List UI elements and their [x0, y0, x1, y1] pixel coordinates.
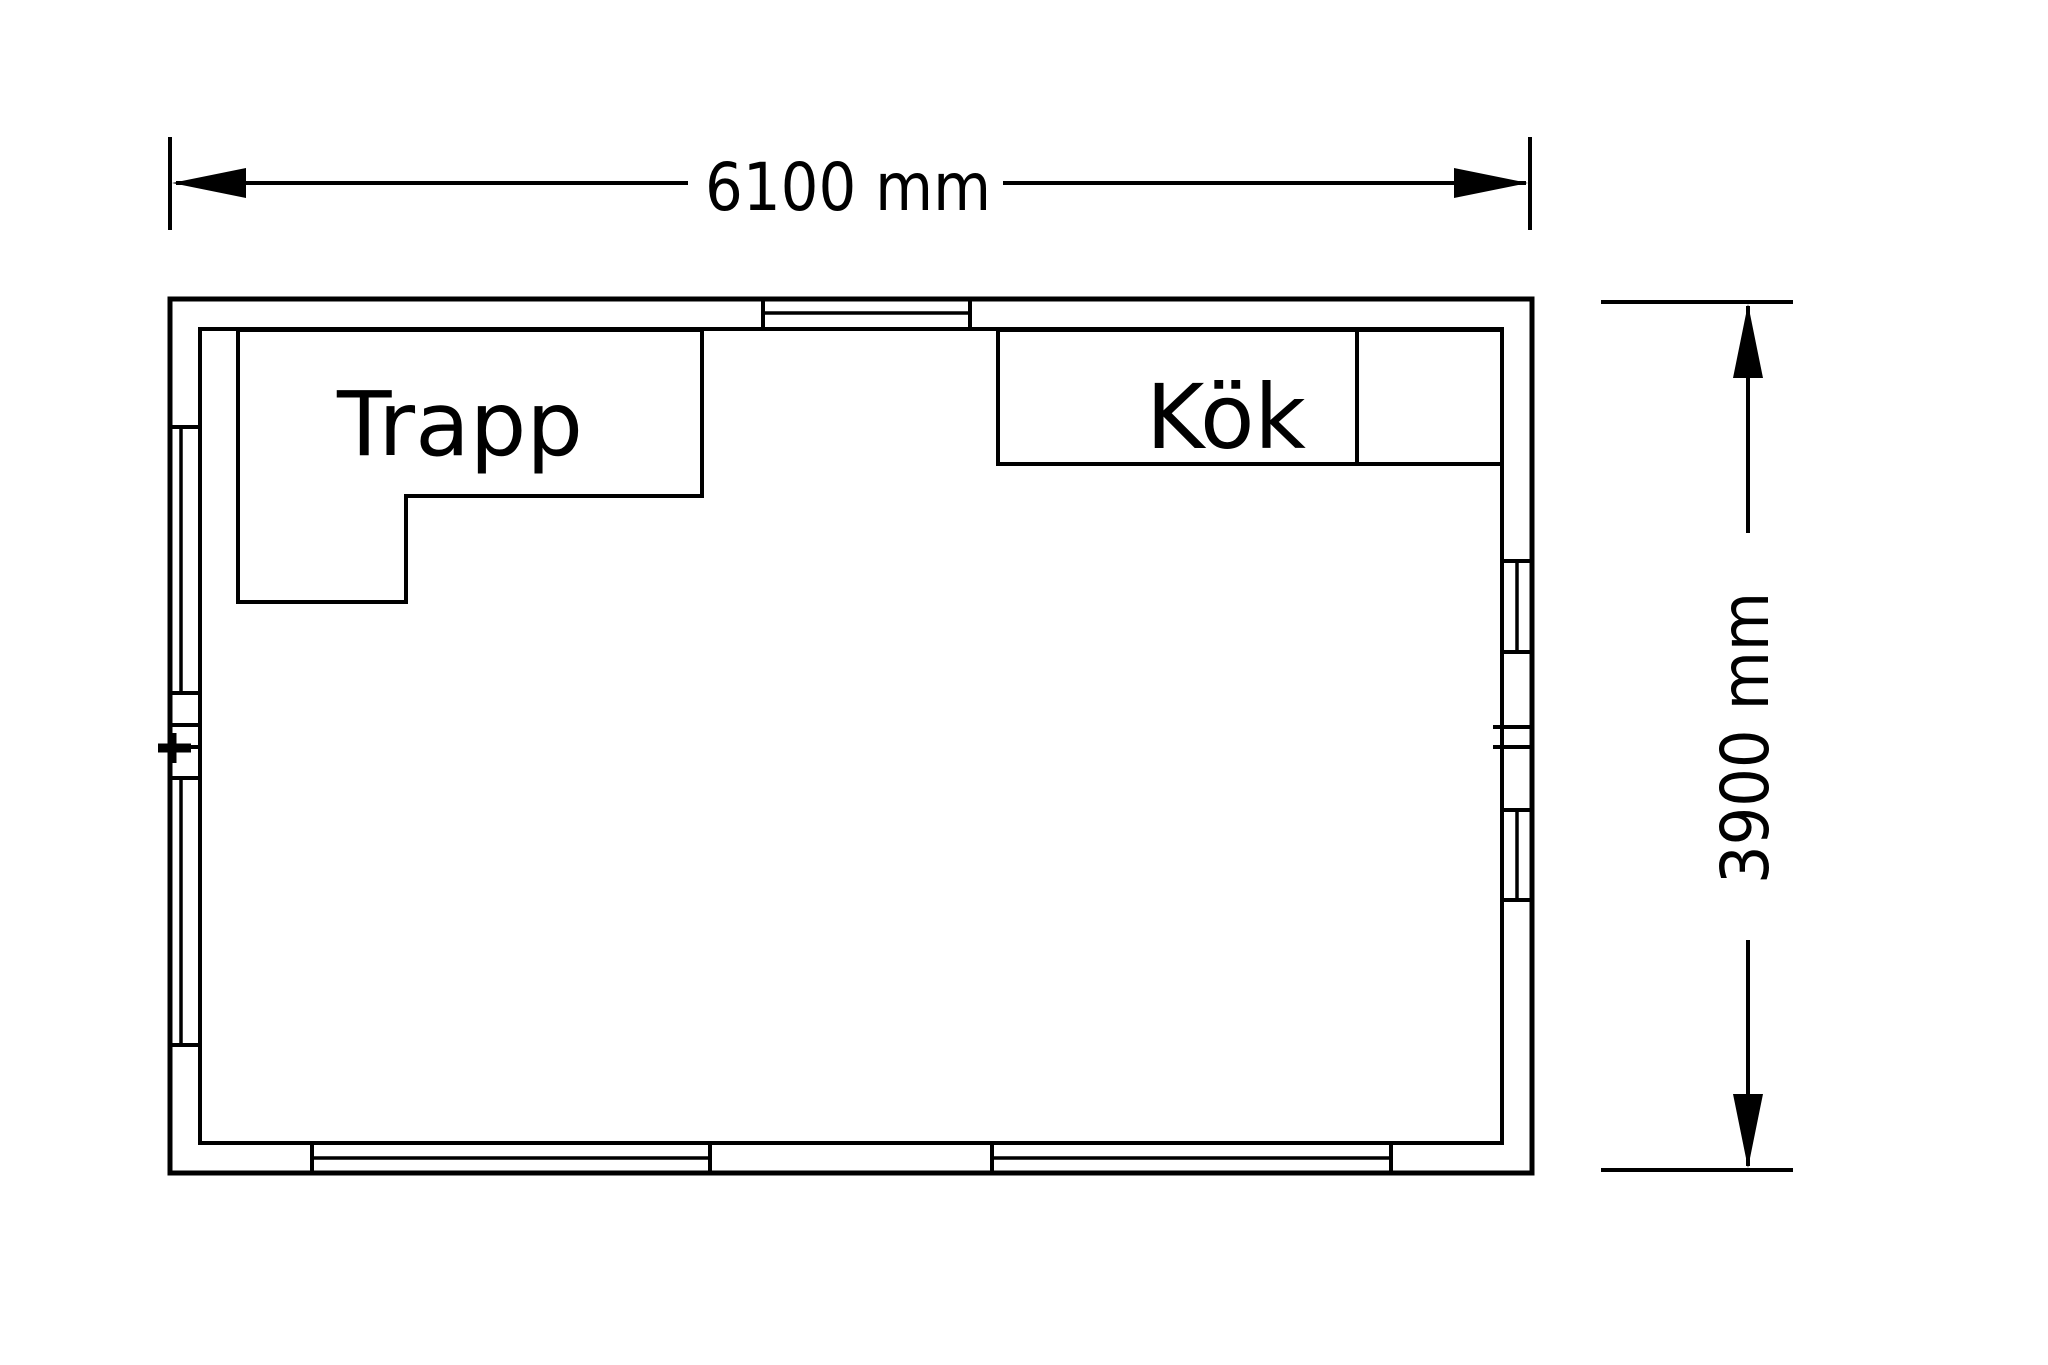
bottom-wall-windows: [312, 1143, 1391, 1173]
room-label-kok: Kök: [1146, 365, 1306, 469]
right-wall-windows: [1493, 561, 1532, 900]
left-wall-windows: [158, 427, 200, 1045]
floor-plan-canvas: Trapp Kök 6100 mm 3900 mm: [0, 0, 2048, 1365]
room-label-trapp: Trapp: [336, 372, 583, 476]
kok-room: Kök: [998, 330, 1502, 469]
width-dimension-label: 6100 mm: [705, 149, 991, 226]
arrow-up-icon: [1733, 304, 1763, 378]
trapp-room: Trapp: [238, 330, 702, 602]
arrow-right-icon: [1454, 168, 1528, 198]
top-wall-window: [763, 299, 970, 329]
arrow-down-icon: [1733, 1094, 1763, 1168]
width-dimension: 6100 mm: [170, 137, 1530, 230]
wall-post-cross-icon: [158, 733, 191, 763]
height-dimension: 3900 mm: [1601, 302, 1793, 1170]
height-dimension-label: 3900 mm: [1707, 592, 1784, 884]
floor-plan-drawing: Trapp Kök 6100 mm 3900 mm: [0, 0, 2048, 1365]
arrow-left-icon: [172, 168, 246, 198]
